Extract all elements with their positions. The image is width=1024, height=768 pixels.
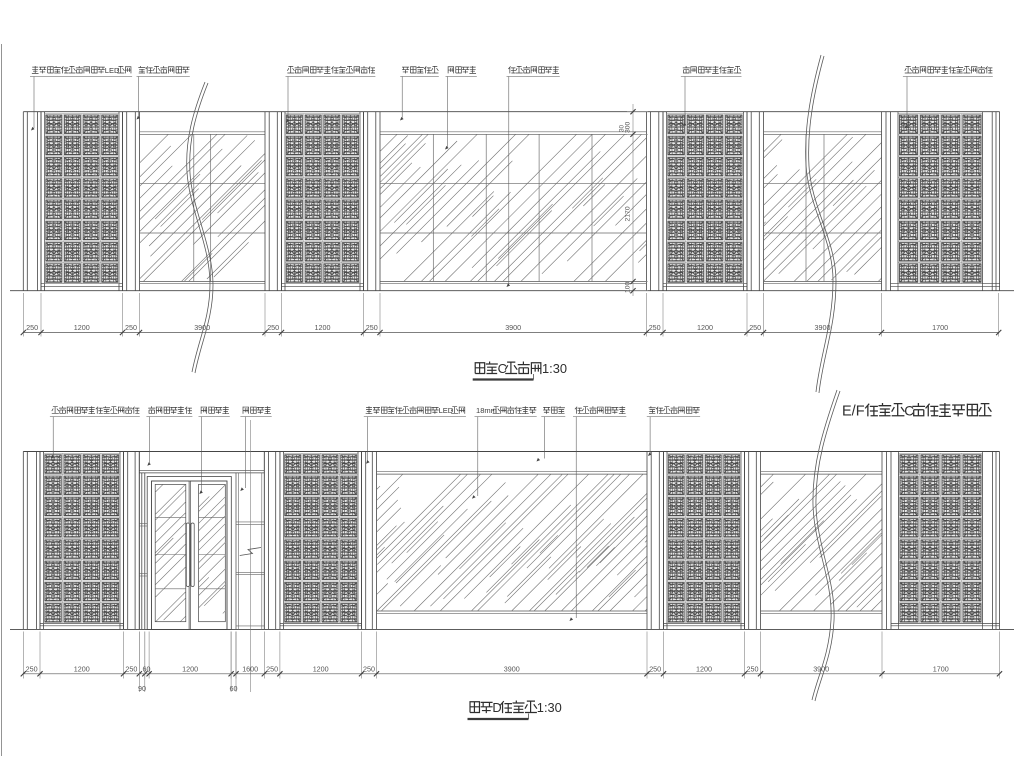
svg-text:1200: 1200	[182, 664, 198, 673]
svg-text:1700: 1700	[932, 323, 948, 332]
svg-text:1600: 1600	[242, 664, 258, 673]
svg-text:250: 250	[649, 664, 661, 673]
svg-text:18mm: 18mm	[476, 406, 497, 415]
svg-text:250: 250	[26, 664, 38, 673]
svg-text:1700: 1700	[933, 664, 949, 673]
svg-text:250: 250	[749, 323, 761, 332]
svg-text:3900: 3900	[504, 664, 520, 673]
svg-text:E/F: E/F	[842, 404, 865, 420]
svg-text:D: D	[492, 700, 501, 715]
svg-text:1200: 1200	[74, 664, 90, 673]
svg-text:1:30: 1:30	[537, 700, 562, 715]
svg-text:60: 60	[230, 684, 238, 693]
svg-text:90: 90	[138, 684, 146, 693]
svg-text:250: 250	[363, 664, 375, 673]
svg-text:1200: 1200	[315, 323, 331, 332]
svg-text:1200: 1200	[697, 323, 713, 332]
svg-text:60: 60	[143, 664, 151, 673]
svg-text:1:30: 1:30	[542, 361, 567, 376]
svg-text:250: 250	[266, 664, 278, 673]
svg-text:1200: 1200	[313, 664, 329, 673]
svg-text:250: 250	[125, 323, 137, 332]
svg-text:30: 30	[619, 124, 626, 132]
svg-text:250: 250	[366, 323, 378, 332]
svg-text:250: 250	[26, 323, 38, 332]
svg-text:250: 250	[267, 323, 279, 332]
svg-text:1200: 1200	[74, 323, 90, 332]
svg-text:1200: 1200	[696, 664, 712, 673]
svg-text:300: 300	[625, 121, 632, 133]
svg-text:100: 100	[625, 281, 632, 293]
svg-text:250: 250	[747, 664, 759, 673]
svg-text:3900: 3900	[505, 323, 521, 332]
svg-text:2170: 2170	[625, 206, 632, 221]
svg-text:250: 250	[649, 323, 661, 332]
svg-text:250: 250	[125, 664, 137, 673]
